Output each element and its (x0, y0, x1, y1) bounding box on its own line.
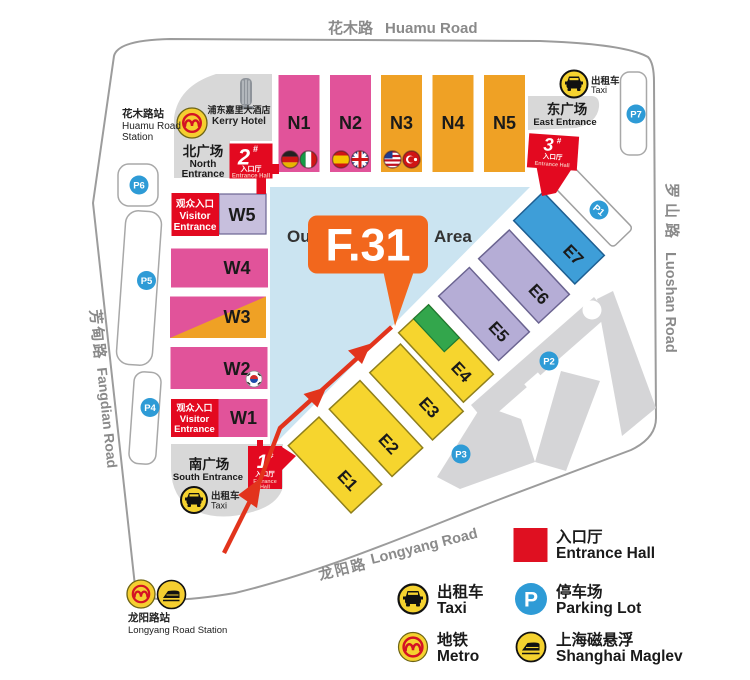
svg-text:South Entrance: South Entrance (173, 472, 243, 483)
svg-text:Shanghai Maglev: Shanghai Maglev (556, 648, 683, 665)
svg-text:#: # (253, 144, 258, 154)
svg-text:N1: N1 (287, 113, 310, 133)
svg-text:W3: W3 (224, 307, 251, 327)
svg-text:P5: P5 (141, 276, 153, 287)
svg-text:Entrance: Entrance (174, 424, 215, 435)
svg-text:Taxi: Taxi (211, 501, 227, 511)
svg-text:P7: P7 (630, 109, 642, 120)
svg-text:Entrance: Entrance (174, 222, 217, 233)
svg-text:P2: P2 (543, 356, 555, 367)
svg-text:观众入口: 观众入口 (176, 402, 212, 413)
svg-text:南广场: 南广场 (189, 456, 230, 472)
svg-text:Longyang Road Station: Longyang Road Station (128, 625, 227, 636)
svg-text:Kerry Hotel: Kerry Hotel (212, 116, 266, 127)
svg-text:Ou: Ou (287, 227, 311, 246)
svg-text:入口厅: 入口厅 (542, 152, 564, 161)
svg-text:Metro: Metro (437, 648, 479, 665)
svg-text:Taxi: Taxi (591, 85, 607, 95)
svg-text:Visitor: Visitor (180, 211, 211, 222)
svg-text:东广场: 东广场 (547, 101, 588, 117)
svg-text:龙阳路站: 龙阳路站 (127, 611, 170, 624)
svg-text:N4: N4 (441, 113, 464, 133)
svg-text:P: P (524, 589, 538, 612)
svg-text:N3: N3 (390, 113, 413, 133)
svg-text:Taxi: Taxi (437, 600, 467, 617)
svg-text:Parking Lot: Parking Lot (556, 600, 641, 617)
svg-text:Entrance Hall: Entrance Hall (232, 174, 271, 180)
svg-text:W4: W4 (224, 258, 251, 278)
svg-text:停车场: 停车场 (556, 582, 603, 601)
svg-text:W5: W5 (229, 205, 256, 225)
svg-text:浦东嘉里大酒店: 浦东嘉里大酒店 (207, 104, 270, 115)
svg-text:入口厅: 入口厅 (556, 528, 603, 546)
svg-text:花木路: 花木路 (328, 19, 374, 37)
svg-text:P6: P6 (133, 180, 145, 191)
svg-text:Huamu Road: Huamu Road (122, 121, 181, 132)
svg-text:花木路站: 花木路站 (122, 107, 164, 120)
svg-text:W1: W1 (230, 408, 257, 428)
svg-text:罗山路: 罗山路 (663, 183, 681, 243)
svg-text:Hall: Hall (260, 485, 271, 491)
svg-text:入口厅: 入口厅 (240, 165, 262, 173)
svg-text:East Entrance: East Entrance (533, 117, 596, 128)
svg-text:N5: N5 (493, 113, 516, 133)
svg-text:Entrance: Entrance (182, 169, 225, 180)
svg-text:Station: Station (122, 132, 153, 143)
svg-text:F.31: F.31 (325, 220, 410, 271)
svg-text:北广场: 北广场 (183, 143, 224, 159)
svg-text:Entrance Hall: Entrance Hall (556, 545, 655, 562)
svg-text:Area: Area (434, 227, 472, 246)
svg-text:P3: P3 (455, 449, 467, 460)
svg-text:出租车: 出租车 (437, 582, 484, 601)
svg-text:观众入口: 观众入口 (175, 198, 214, 210)
svg-text:3: 3 (543, 134, 554, 155)
svg-text:P4: P4 (144, 403, 156, 414)
svg-text:Luoshan Road: Luoshan Road (662, 252, 678, 353)
svg-text:上海磁悬浮: 上海磁悬浮 (556, 630, 634, 649)
svg-text:N2: N2 (339, 113, 362, 133)
svg-text:Huamu Road: Huamu Road (385, 20, 478, 37)
svg-text:地铁: 地铁 (437, 630, 469, 649)
